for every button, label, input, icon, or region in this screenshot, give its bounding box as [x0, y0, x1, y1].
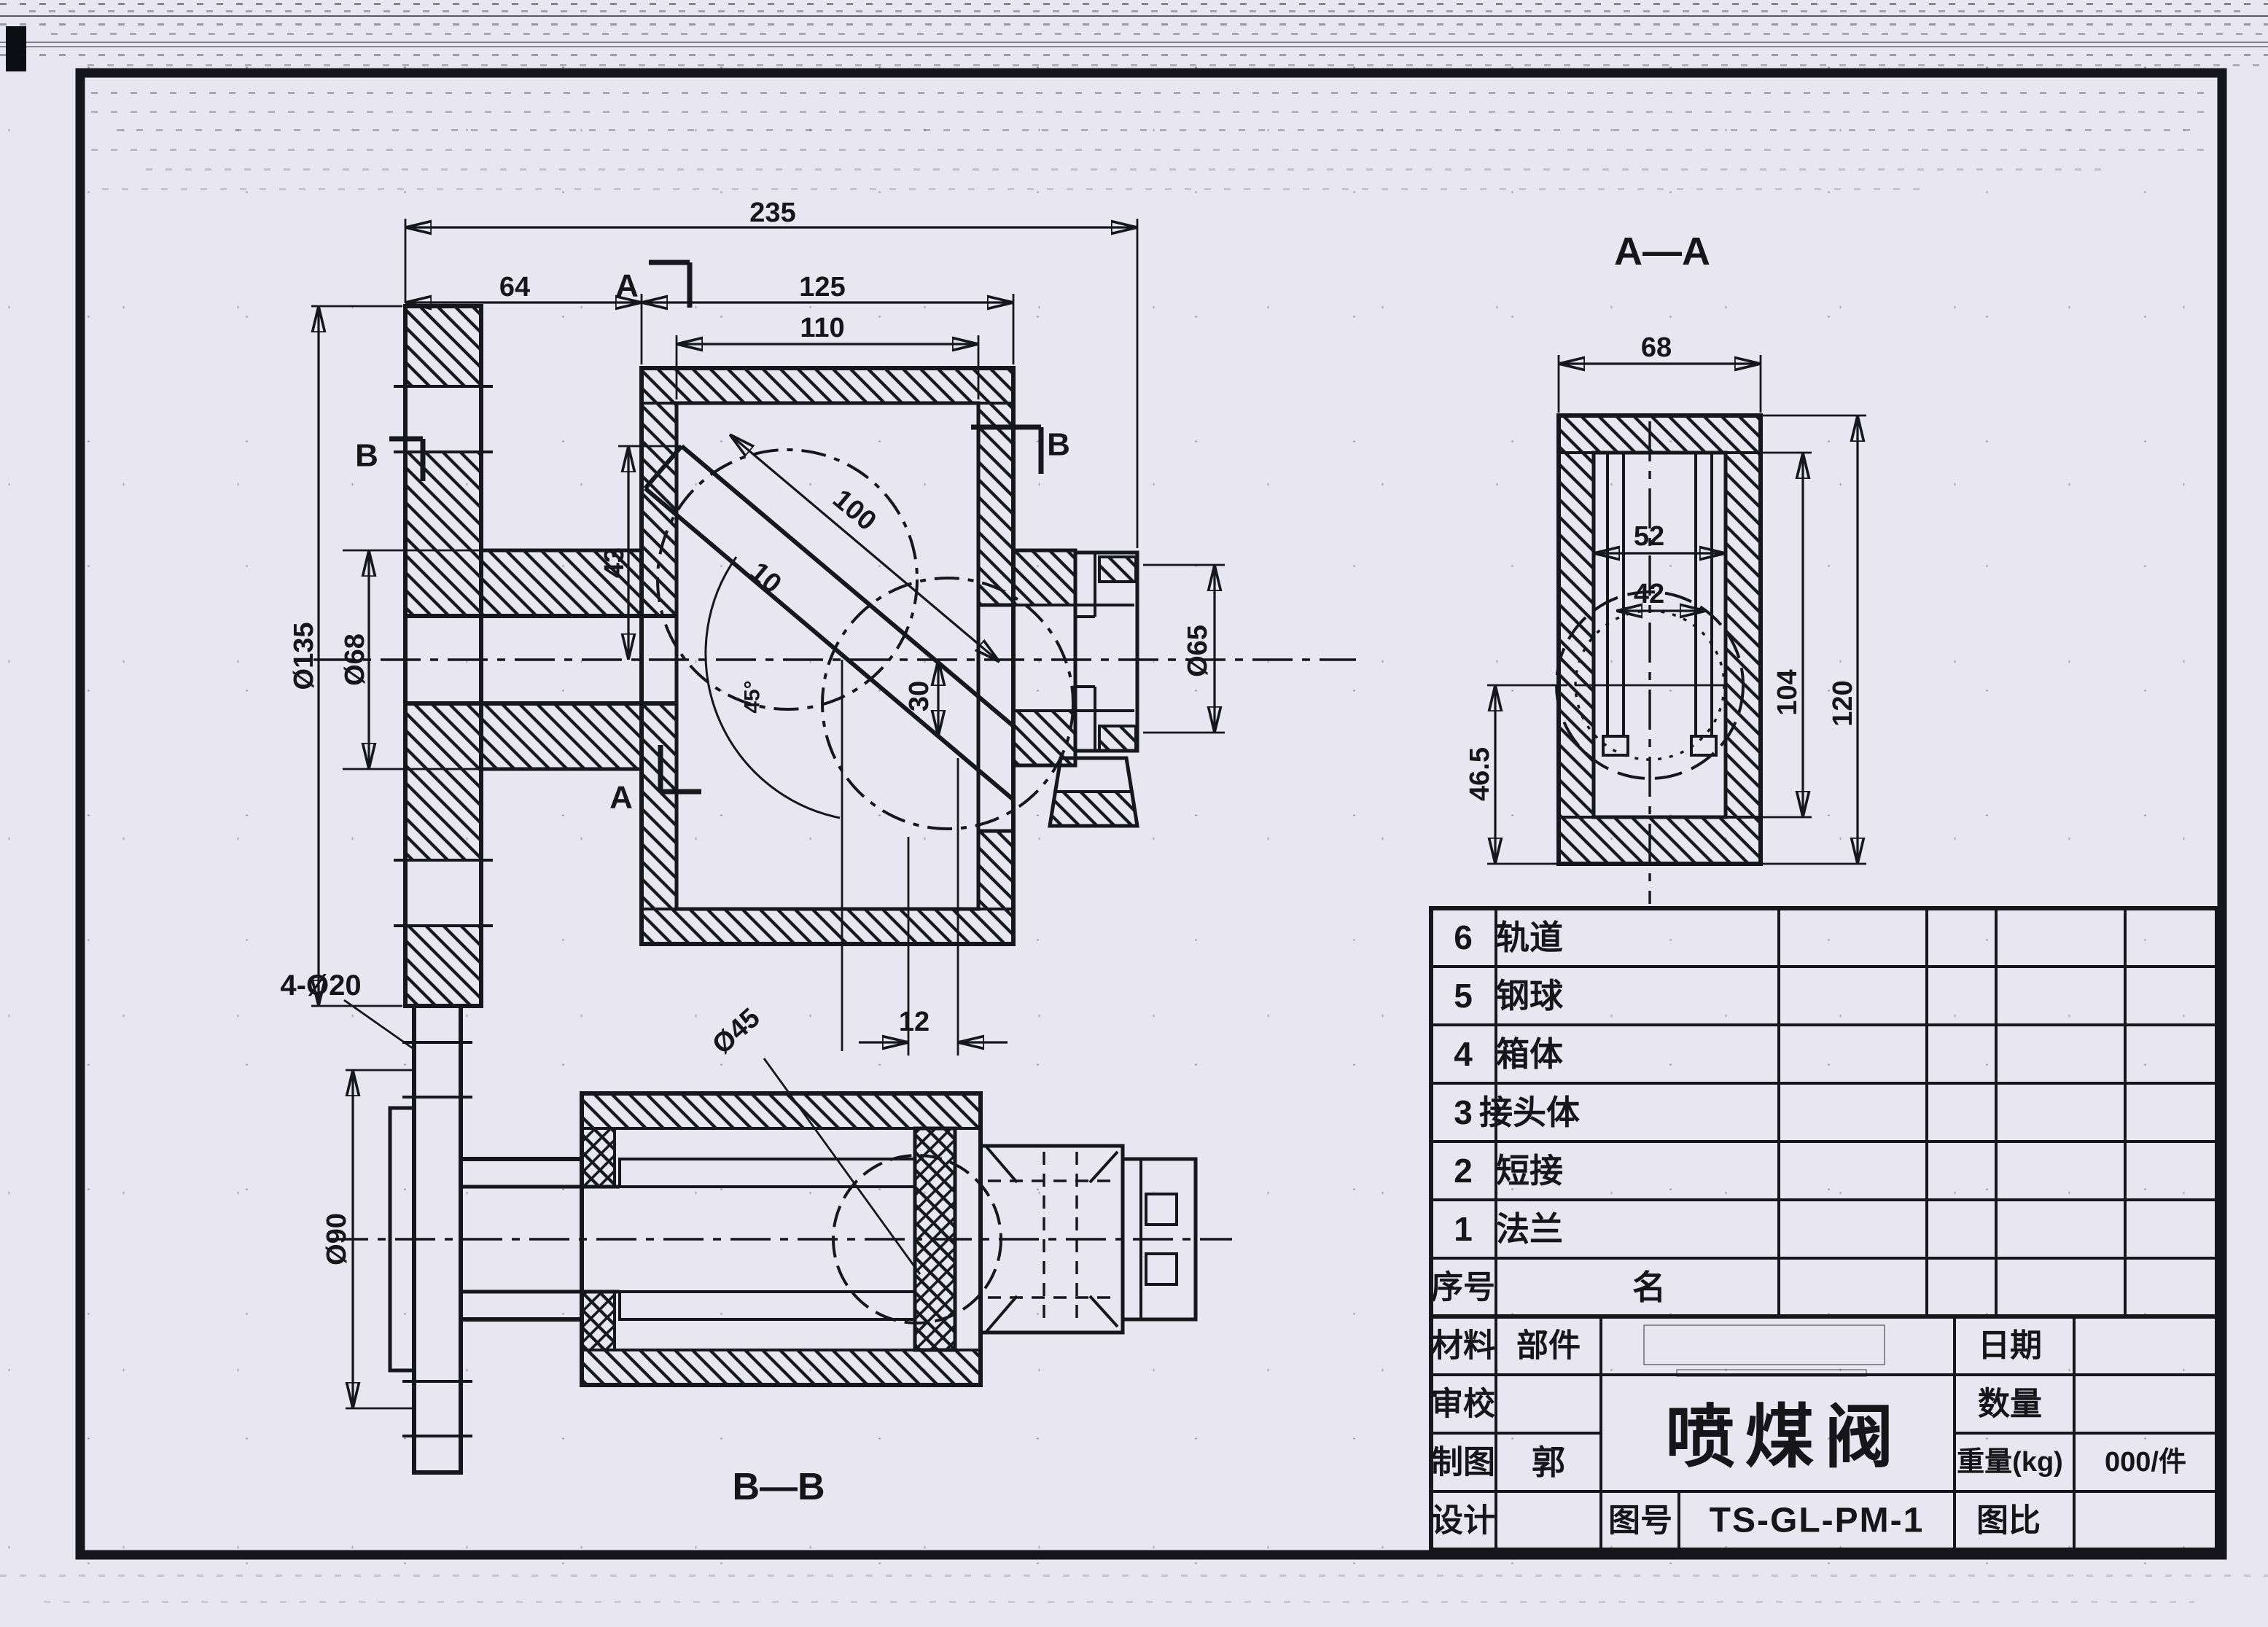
title-block: 材料 部件 审校 制图 郭 设计 喷煤阀 图号 TS-GL-PM-1 日期 数量…: [1431, 1316, 2217, 1550]
parts-row-no: 1: [1454, 1210, 1473, 1248]
dim-slot-length: 100: [827, 484, 882, 537]
sheet-frame: [80, 73, 2222, 1555]
dim-inner-width: 110: [800, 313, 844, 343]
front-view: A A B B 235 64 125 110 Ø135 Ø68 100 10 4…: [289, 198, 1356, 1056]
title-weight-value: 000/件: [2105, 1447, 2186, 1478]
parts-header-no: 序号: [1431, 1270, 1495, 1306]
product-title: 喷煤阀: [1665, 1399, 1903, 1476]
dim-aa-52: 52: [1634, 521, 1664, 552]
dim-aa-120: 120: [1828, 680, 1858, 726]
section-marker-a-top: A: [615, 268, 639, 304]
dim-right-od: Ø65: [1182, 625, 1213, 677]
title-part-label: 部件: [1516, 1328, 1581, 1364]
dim-aa-104: 104: [1772, 669, 1803, 715]
dim-bb-90: Ø90: [322, 1213, 352, 1265]
parts-row-name: 法兰: [1496, 1210, 1563, 1248]
dim-neck-od: Ø68: [340, 633, 370, 686]
parts-row-name: 箱体: [1496, 1035, 1563, 1073]
title-design-label: 设计: [1431, 1503, 1495, 1539]
dim-box-width: 125: [799, 272, 845, 303]
dim-aa-68: 68: [1641, 332, 1672, 363]
dim-30: 30: [904, 681, 935, 711]
dim-slot-width: 10: [744, 556, 787, 599]
title-review-label: 审校: [1431, 1386, 1495, 1422]
parts-row-no: 4: [1454, 1035, 1473, 1073]
dim-bb-bolt-holes: 4-Ø20: [280, 969, 361, 1002]
drawing-no-value: TS-GL-PM-1: [1710, 1502, 1925, 1540]
parts-row-no: 2: [1454, 1152, 1473, 1190]
title-date-label: 日期: [1978, 1328, 2042, 1364]
title-weight-label: 重量(kg): [1957, 1447, 2063, 1478]
dim-12: 12: [899, 1007, 930, 1037]
section-aa-label: A—A: [1614, 230, 1710, 273]
dim-flange-od: Ø135: [289, 623, 319, 690]
dim-43: 43: [599, 547, 630, 578]
dim-aa-46-5: 46.5: [1465, 747, 1495, 801]
dim-total-width: 235: [749, 198, 795, 228]
parts-row-no: 5: [1454, 977, 1473, 1015]
title-qty-label: 数量: [1978, 1386, 2042, 1422]
dim-left-offset: 64: [499, 272, 530, 303]
parts-row-name: 轨道: [1496, 918, 1563, 956]
parts-row-name: 钢球: [1496, 977, 1564, 1015]
parts-row-no: 3: [1454, 1093, 1473, 1131]
parts-row-no: 6: [1454, 918, 1473, 956]
title-scale-label: 图比: [1976, 1503, 2041, 1539]
parts-list-table: 6 轨道 5 钢球 4 箱体 3 接头体 2 短接 1 法兰 序号 名: [1431, 908, 2217, 1316]
parts-header-name: 名: [1632, 1268, 1666, 1306]
parts-row-name: 短接: [1496, 1152, 1563, 1190]
section-marker-b-right: B: [1047, 427, 1070, 463]
dim-angle: 45°: [741, 680, 765, 713]
section-bb-label: B—B: [732, 1466, 825, 1508]
parts-row-name: 接头体: [1479, 1093, 1580, 1131]
dim-aa-42: 42: [1634, 579, 1664, 609]
drawing-no-label: 图号: [1608, 1503, 1672, 1539]
section-marker-b-left: B: [355, 438, 378, 474]
section-marker-a-bottom: A: [609, 780, 633, 816]
dim-bb-45: Ø45: [706, 1002, 765, 1060]
title-draft-label: 制图: [1431, 1445, 1495, 1480]
section-aa-view: A—A: [1465, 230, 1866, 904]
title-draft-value: 郭: [1532, 1443, 1565, 1481]
drawing-canvas: A A B B 235 64 125 110 Ø135 Ø68 100 10 4…: [0, 0, 2268, 1627]
section-bb-view: 4-Ø20: [280, 969, 1232, 1508]
title-material-label: 材料: [1431, 1328, 1495, 1364]
scanned-drawing-sheet: A A B B 235 64 125 110 Ø135 Ø68 100 10 4…: [0, 0, 2268, 1627]
